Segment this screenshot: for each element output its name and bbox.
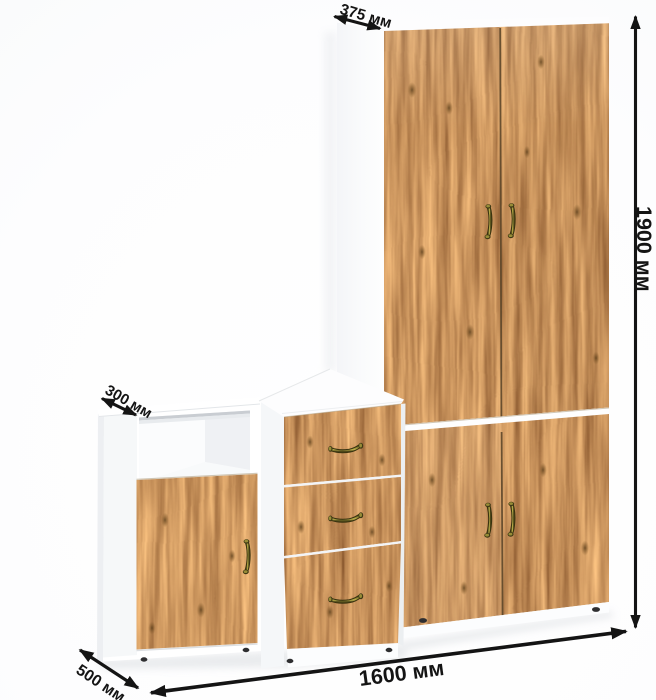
svg-text:1900 мм: 1900 мм — [632, 206, 656, 292]
